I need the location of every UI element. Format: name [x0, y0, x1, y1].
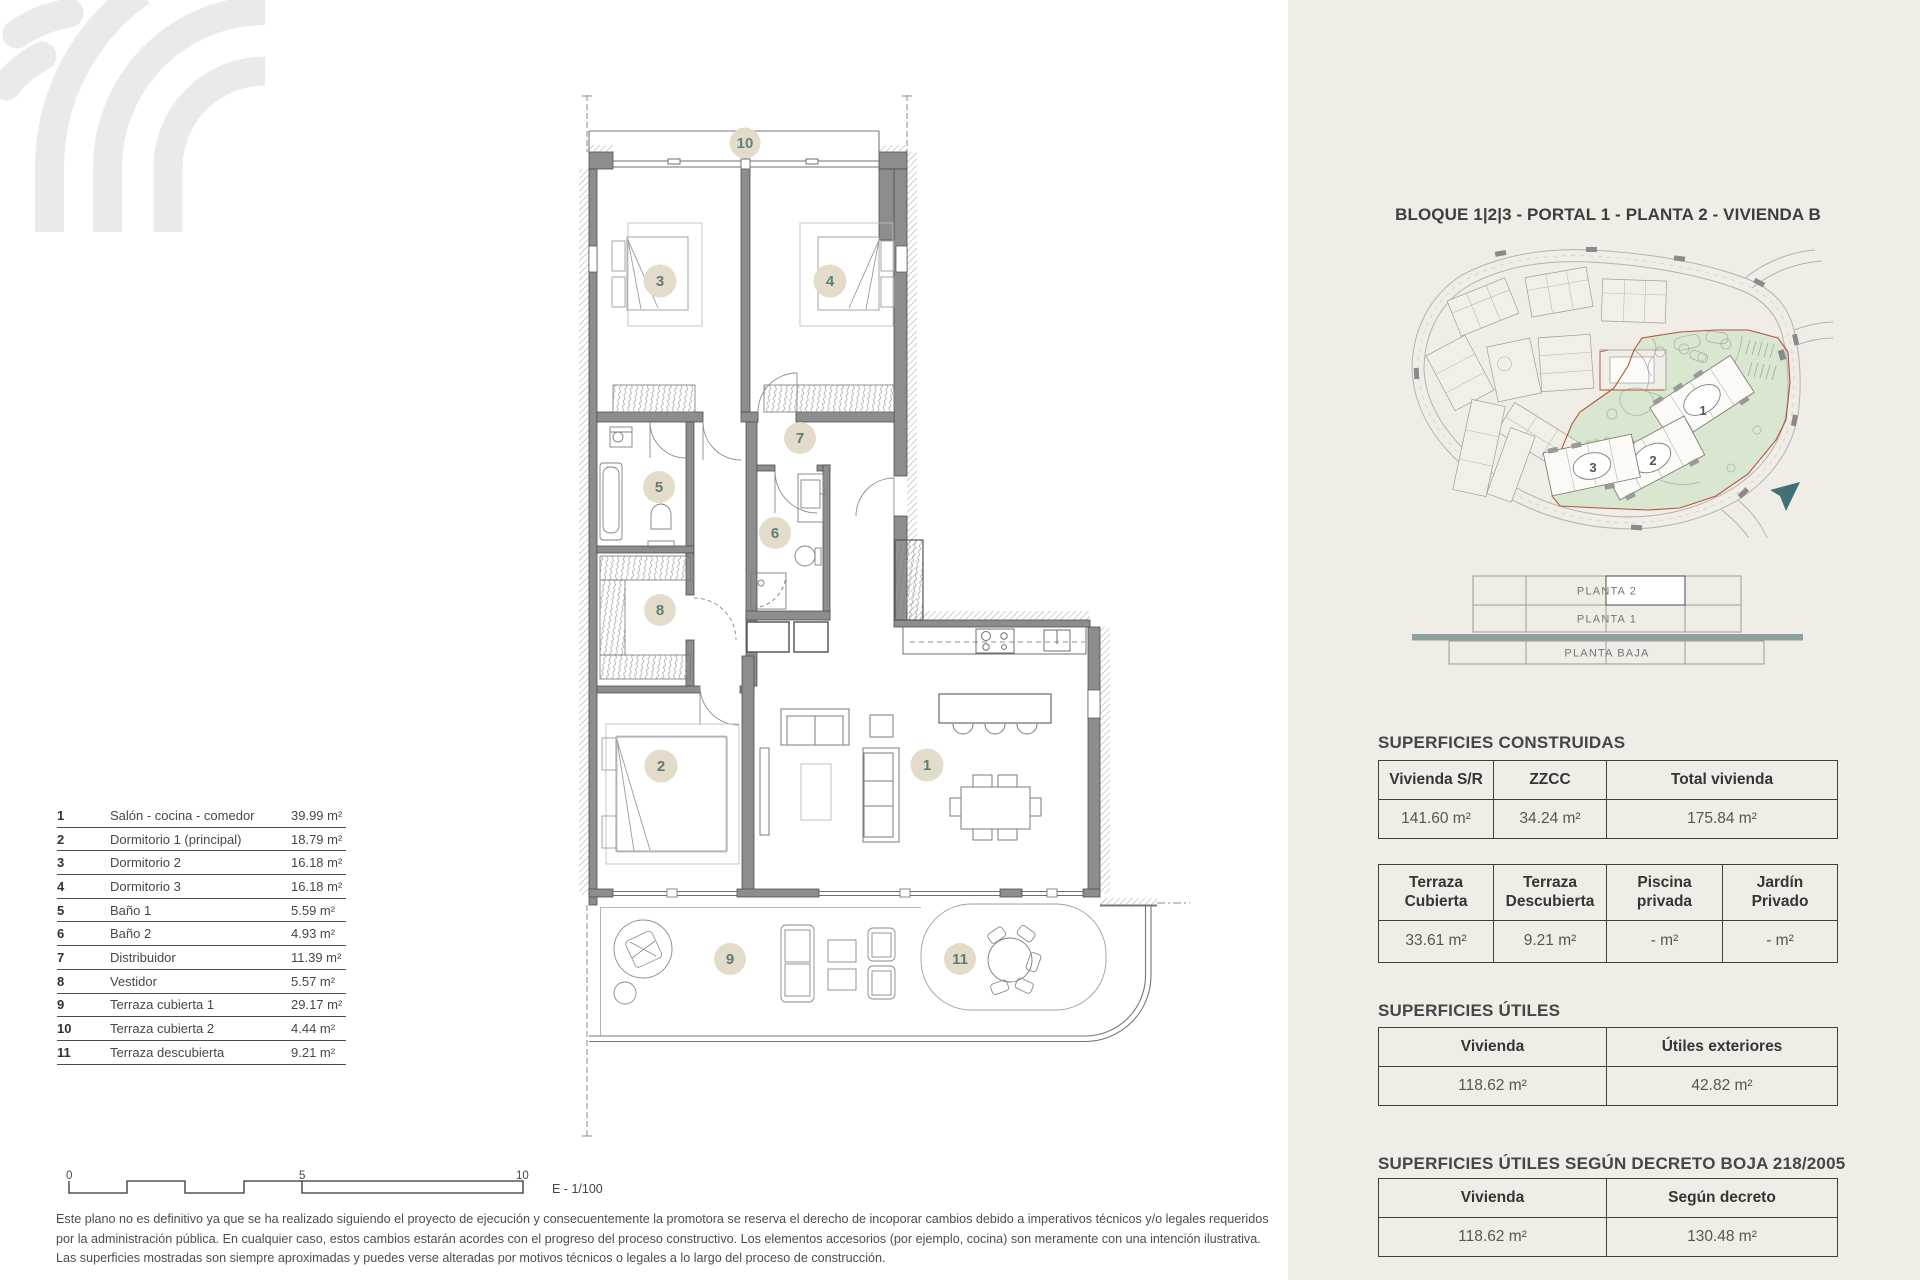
svg-text:6: 6 [771, 525, 779, 542]
svg-text:9: 9 [726, 951, 734, 968]
svg-text:PLANTA 1: PLANTA 1 [1577, 614, 1637, 626]
svg-text:3: 3 [656, 273, 664, 290]
svg-text:2: 2 [657, 758, 665, 775]
svg-text:5: 5 [655, 479, 663, 496]
svg-text:10: 10 [516, 1170, 529, 1182]
svg-text:7: 7 [796, 430, 804, 447]
svg-text:11: 11 [952, 951, 968, 968]
svg-text:1: 1 [923, 757, 931, 774]
svg-text:PLANTA BAJA: PLANTA BAJA [1564, 648, 1649, 660]
svg-text:2: 2 [1649, 453, 1656, 468]
svg-text:3: 3 [1589, 460, 1596, 475]
svg-text:0: 0 [66, 1170, 72, 1182]
svg-text:E - 1/100: E - 1/100 [552, 1182, 603, 1196]
svg-text:PLANTA 2: PLANTA 2 [1577, 586, 1637, 598]
svg-text:5: 5 [299, 1170, 305, 1182]
svg-text:8: 8 [656, 602, 664, 619]
svg-text:10: 10 [737, 135, 754, 152]
svg-text:4: 4 [826, 273, 835, 290]
svg-text:1: 1 [1699, 403, 1706, 418]
